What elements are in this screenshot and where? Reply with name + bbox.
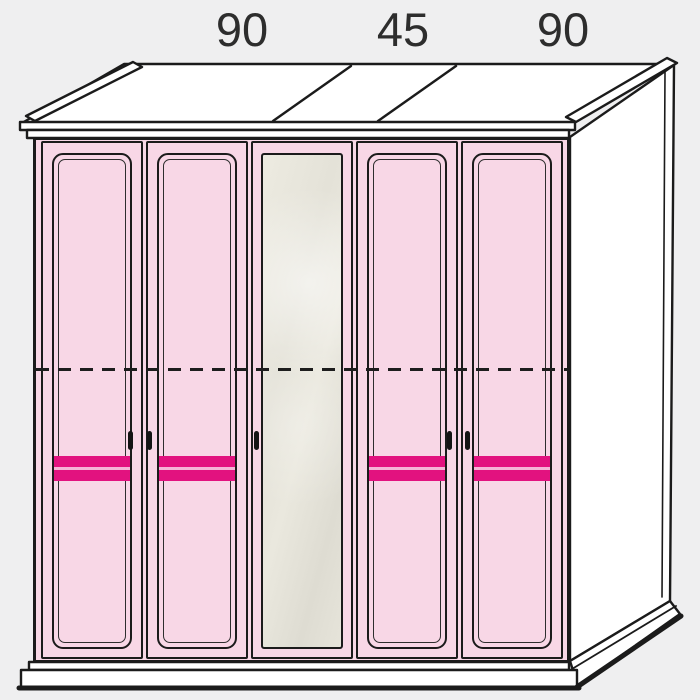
door-3-handle (254, 431, 259, 450)
door-1-stripe-band (54, 456, 130, 481)
door-5-handle (465, 431, 470, 450)
side-panel (570, 65, 674, 661)
door-2-panel-frame (157, 153, 237, 649)
door-1-handle (128, 431, 133, 450)
door-2-handle (147, 431, 152, 450)
door-4-panel-inner-line (373, 159, 441, 643)
wardrobe-diagram: 90 45 90 (0, 0, 700, 700)
door-2-stripe-band (159, 456, 235, 481)
door-5-stripe-band (474, 456, 550, 481)
door-5 (461, 141, 563, 659)
door-4 (356, 141, 458, 659)
door-2 (146, 141, 248, 659)
wardrobe-front-frame (33, 137, 570, 663)
door-4-panel-frame (367, 153, 447, 649)
door-5-panel-frame (472, 153, 552, 649)
door-1 (41, 141, 143, 659)
door-1-panel-inner-line (58, 159, 126, 643)
door-1-panel-frame (52, 153, 132, 649)
internal-shelf-dashed-line (36, 368, 567, 371)
door-2-panel-inner-line (163, 159, 231, 643)
door-4-stripe-band (369, 456, 445, 481)
mirror-pane (261, 153, 343, 649)
door-5-panel-inner-line (478, 159, 546, 643)
door-4-handle (447, 431, 452, 450)
door-3-mirror (251, 141, 353, 659)
base-front-lower-strip (21, 670, 577, 687)
